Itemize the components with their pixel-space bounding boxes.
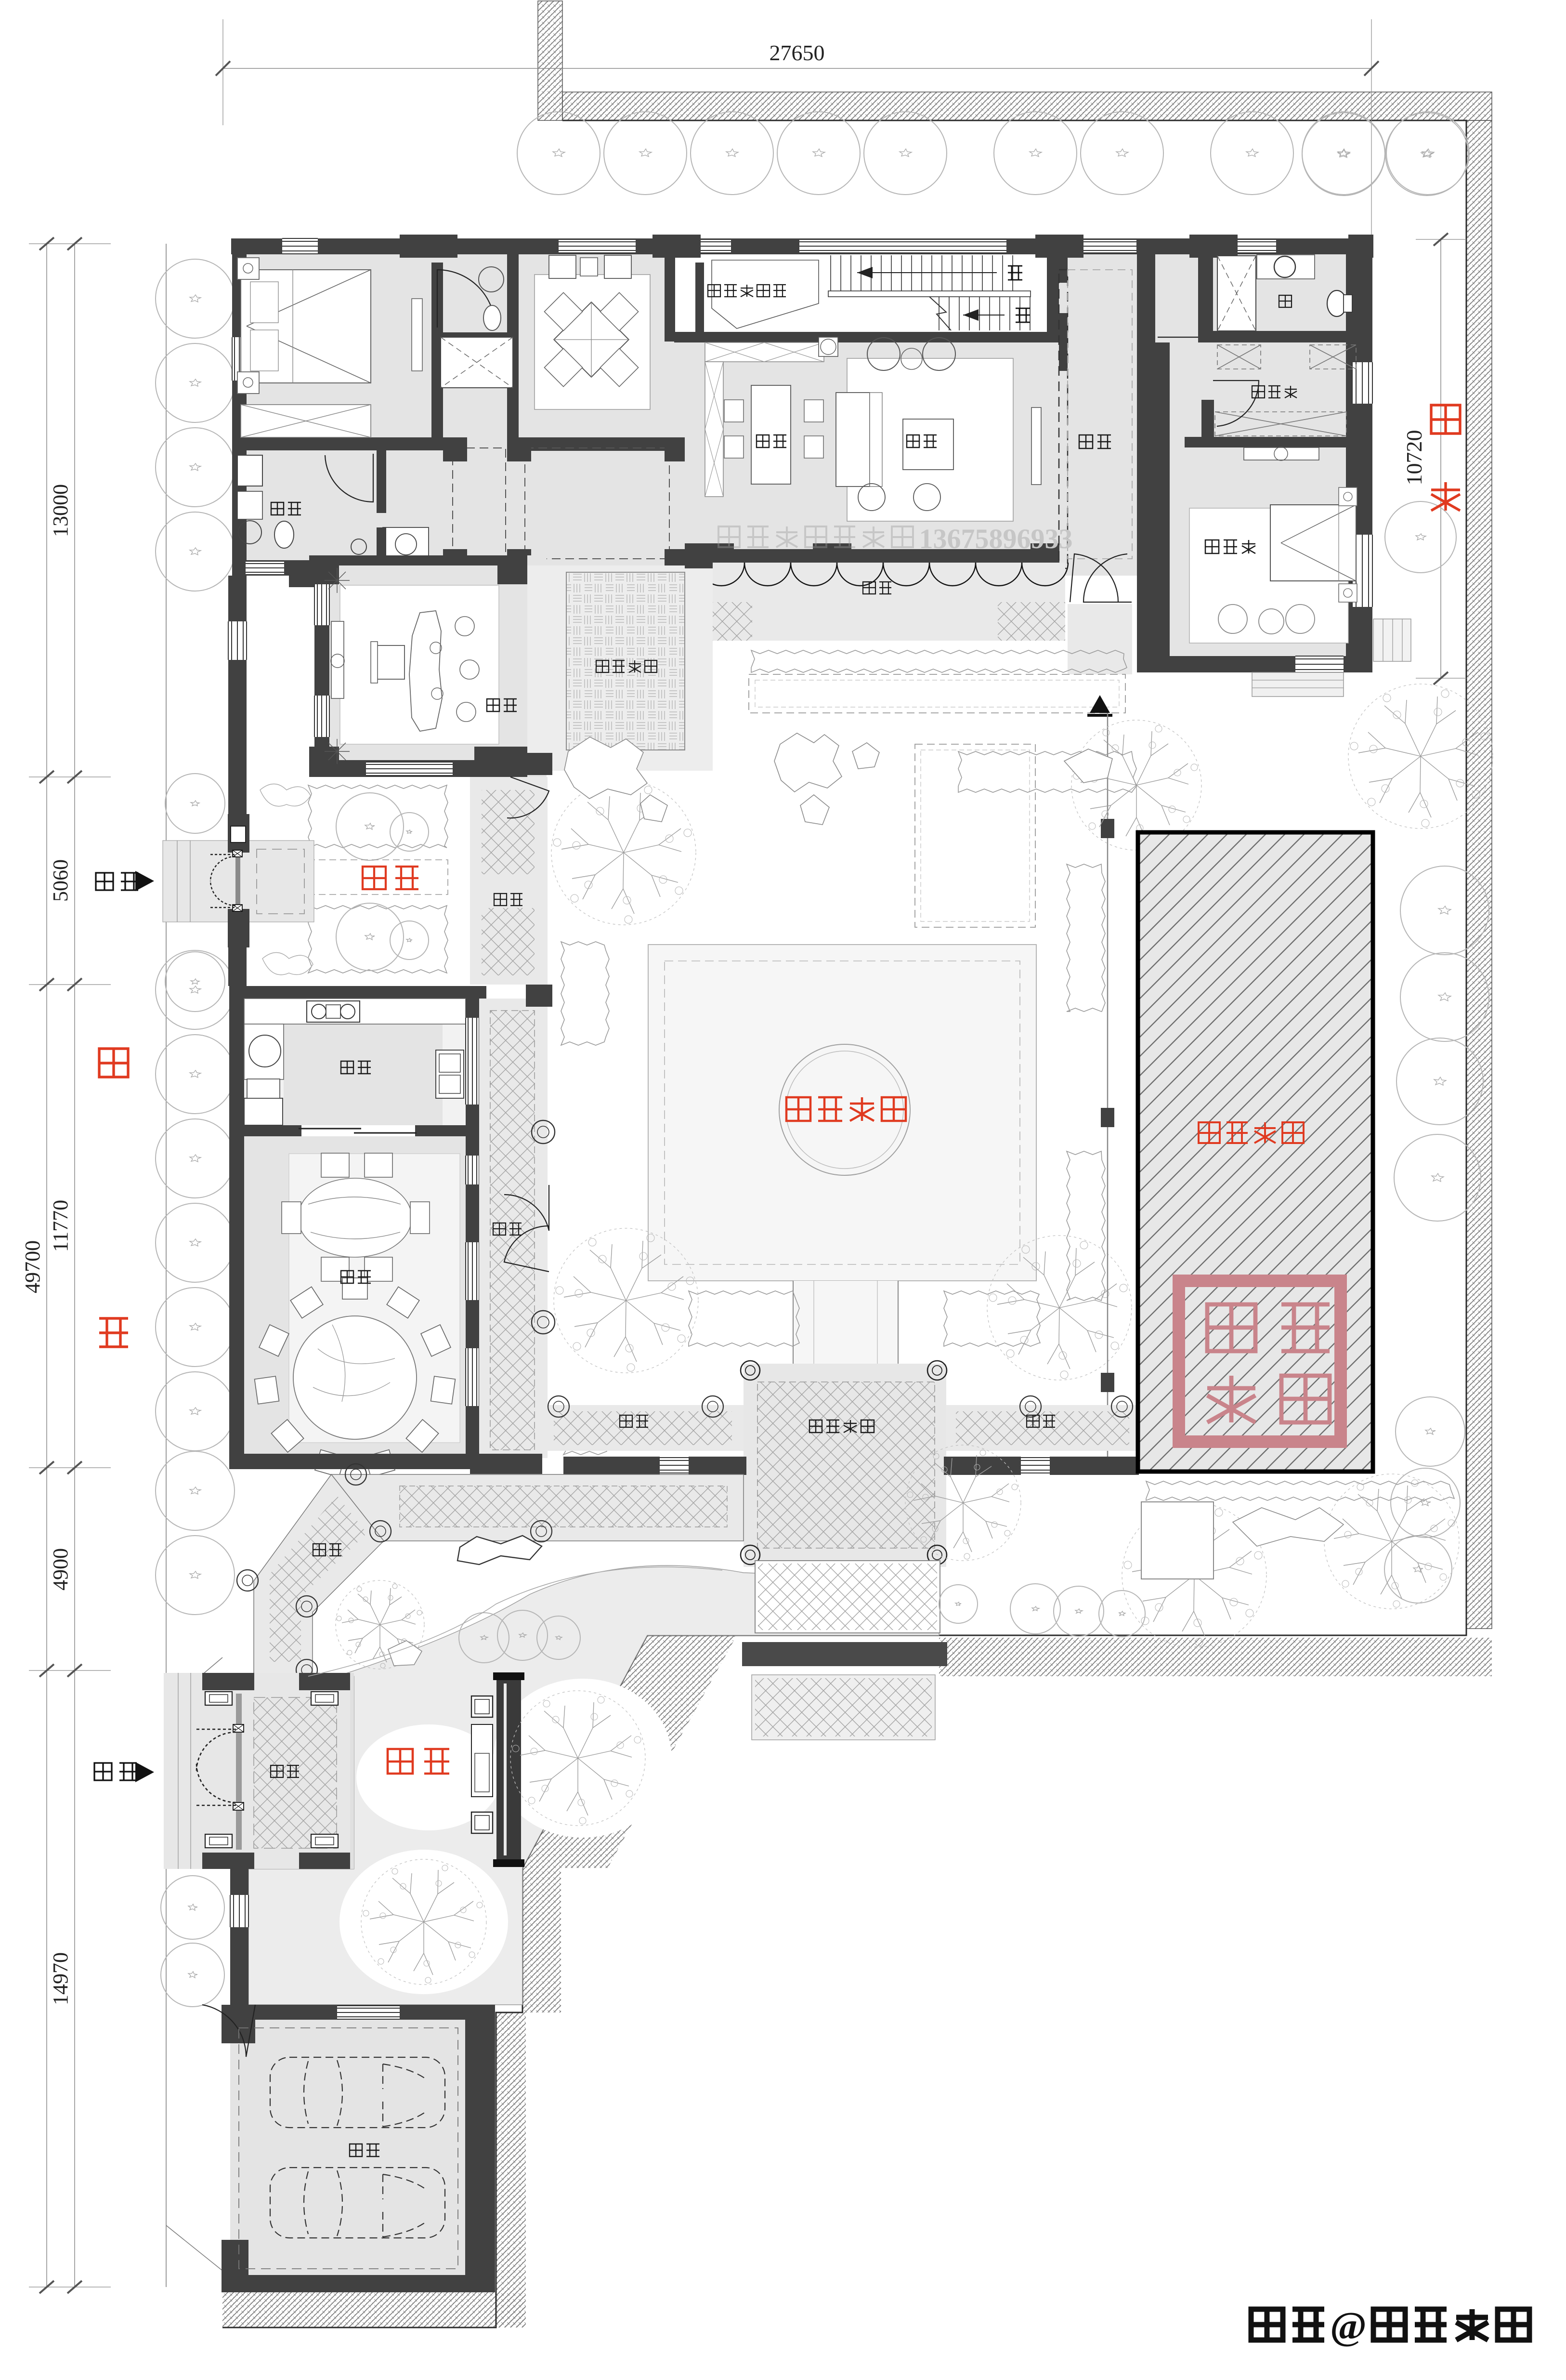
svg-text:4900: 4900	[49, 1548, 72, 1591]
svg-text:27650: 27650	[770, 40, 825, 65]
svg-text:11770: 11770	[49, 1200, 72, 1252]
svg-text:13675896933: 13675896933	[919, 523, 1073, 554]
svg-text:10720: 10720	[1402, 430, 1426, 486]
svg-text:13000: 13000	[49, 484, 72, 537]
svg-text:49700: 49700	[21, 1240, 44, 1293]
svg-text:@: @	[1330, 2304, 1367, 2348]
svg-text:14970: 14970	[49, 1952, 72, 2005]
svg-text:5060: 5060	[49, 859, 72, 902]
